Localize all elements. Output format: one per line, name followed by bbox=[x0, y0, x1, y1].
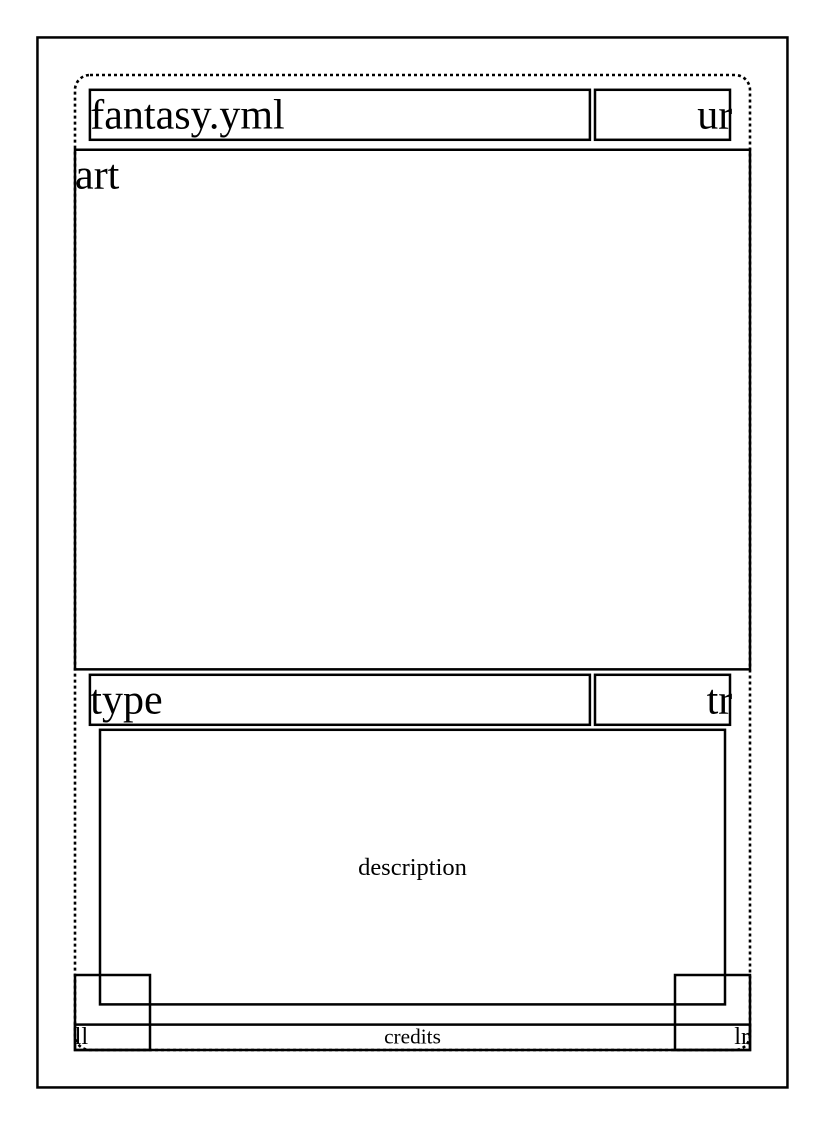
svg-text:credits: credits bbox=[384, 1025, 441, 1049]
svg-text:description: description bbox=[358, 854, 467, 881]
svg-text:fantasy.yml: fantasy.yml bbox=[90, 92, 284, 138]
svg-text:art: art bbox=[75, 152, 120, 198]
svg-text:type: type bbox=[90, 677, 162, 723]
svg-text:ur: ur bbox=[697, 92, 732, 138]
svg-text:ll: ll bbox=[75, 1023, 89, 1050]
svg-text:lr: lr bbox=[734, 1023, 749, 1050]
svg-text:tr: tr bbox=[707, 677, 733, 723]
